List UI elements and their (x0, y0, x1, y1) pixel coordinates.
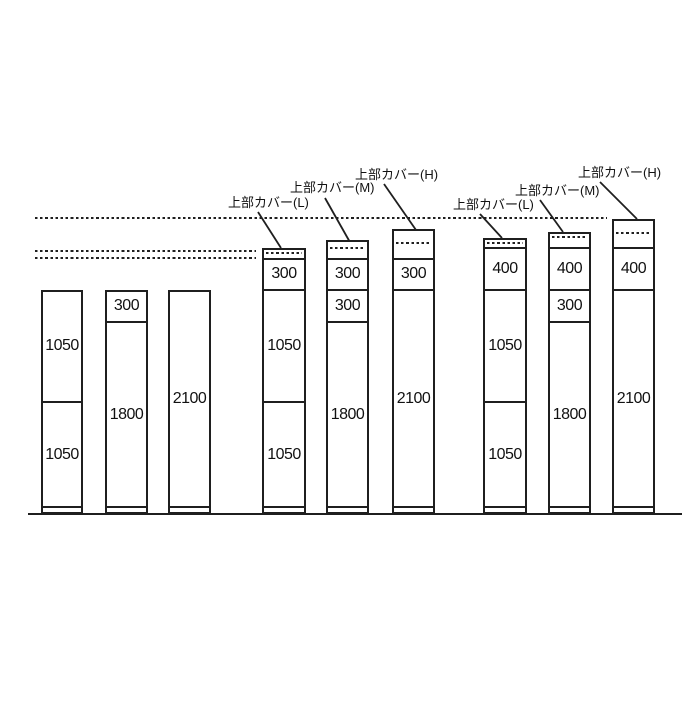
top-cover-dash-line (616, 232, 651, 234)
top-cover-dash-line (396, 242, 431, 244)
dimension-label: 300 (557, 297, 582, 315)
ceiling-guide-line (35, 217, 607, 219)
dimension-label: 2100 (617, 390, 651, 408)
cabinet-bar-6 (392, 258, 435, 514)
section-divider (484, 289, 526, 291)
section-divider (549, 321, 590, 323)
section-divider (327, 289, 368, 291)
dimension-label: 1800 (553, 406, 587, 424)
leader-line (600, 182, 637, 219)
top-cover-label-H: 上部カバー(H) (578, 165, 661, 181)
section-divider (549, 289, 590, 291)
lower-ref-guide-line (35, 257, 256, 259)
section-divider (327, 321, 368, 323)
dimension-label: 1050 (45, 446, 79, 464)
dimension-label: 1800 (331, 406, 365, 424)
top-cover-dash-line (552, 236, 587, 238)
diagram-canvas: 1050105030018002100300105010503003001800… (0, 0, 700, 701)
top-cover-H (612, 219, 655, 249)
dimension-label: 300 (271, 265, 296, 283)
plinth-line (169, 506, 210, 508)
top-cover-M (548, 232, 591, 249)
dimension-label: 300 (335, 265, 360, 283)
dimension-label: 300 (401, 265, 426, 283)
cabinet-bar-7 (483, 247, 527, 514)
top-cover-label-M: 上部カバー(M) (515, 183, 600, 199)
top-cover-dash-line (266, 252, 302, 254)
plinth-line (327, 506, 368, 508)
leader-line (384, 184, 416, 230)
top-cover-dash-line (330, 247, 365, 249)
section-divider (613, 289, 654, 291)
leader-line (325, 198, 351, 244)
top-cover-L (262, 248, 306, 260)
plinth-line (484, 506, 526, 508)
cabinet-bar-2 (105, 290, 148, 514)
top-cover-label-L: 上部カバー(L) (228, 195, 309, 211)
plinth-line (42, 506, 82, 508)
dimension-label: 1800 (110, 406, 144, 424)
section-divider (393, 289, 434, 291)
dimension-label: 400 (492, 260, 517, 278)
dimension-label: 2100 (397, 390, 431, 408)
upper-ref-guide-line (35, 250, 256, 252)
dimension-label: 2100 (173, 390, 207, 408)
dimension-label: 300 (114, 297, 139, 315)
dimension-label: 1050 (45, 337, 79, 355)
section-divider (106, 321, 147, 323)
top-cover-label-H: 上部カバー(H) (355, 167, 438, 183)
dimension-label: 1050 (488, 337, 522, 355)
plinth-line (106, 506, 147, 508)
section-divider (42, 401, 82, 403)
section-divider (484, 401, 526, 403)
dimension-label: 400 (621, 260, 646, 278)
dimension-label: 1050 (488, 446, 522, 464)
cabinet-bar-8 (548, 247, 591, 514)
top-cover-dash-line (487, 242, 523, 244)
plinth-line (263, 506, 305, 508)
dimension-label: 300 (335, 297, 360, 315)
top-cover-M (326, 240, 369, 260)
dimension-label: 1050 (267, 337, 301, 355)
plinth-line (613, 506, 654, 508)
section-divider (263, 401, 305, 403)
cabinet-bar-9 (612, 247, 655, 514)
plinth-line (549, 506, 590, 508)
cabinet-bar-4 (262, 258, 306, 514)
dimension-label: 1050 (267, 446, 301, 464)
top-cover-H (392, 229, 435, 260)
leader-line (540, 200, 563, 232)
dimension-label: 400 (557, 260, 582, 278)
section-divider (263, 289, 305, 291)
plinth-line (393, 506, 434, 508)
top-cover-label-L: 上部カバー(L) (453, 197, 534, 213)
